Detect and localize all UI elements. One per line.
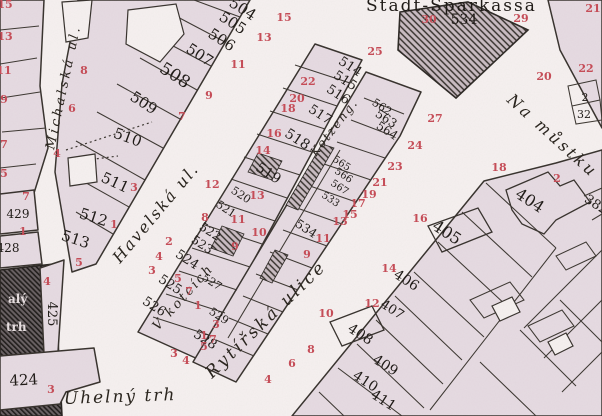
house-number-label: 7 [209, 333, 217, 346]
plot-number-label: 425 [44, 302, 59, 327]
house-number-label: 14 [381, 262, 397, 275]
house-number-label: 20 [536, 70, 552, 83]
house-number-label: 11 [230, 213, 245, 226]
house-number-label: 8 [80, 64, 88, 77]
house-number-label: 14 [255, 144, 271, 157]
house-number-label: 9 [0, 93, 8, 106]
house-number-label: 15 [276, 11, 291, 24]
house-number-label: 5 [174, 272, 182, 285]
house-number-label: 1 [19, 225, 27, 238]
house-number-label: 30 [421, 13, 437, 26]
house-number-label: 12 [204, 178, 219, 191]
house-number-label: 18 [280, 102, 296, 115]
house-number-label: 11 [230, 58, 245, 71]
plot-number-label: 428 [0, 241, 19, 255]
house-number-label: 6 [68, 102, 76, 115]
house-number-label: 7 [0, 138, 8, 151]
house-number-label: 13 [256, 31, 271, 44]
house-number-label: 22 [300, 75, 315, 88]
house-number-label: 9 [303, 248, 311, 261]
plot-number-label: 2 [582, 91, 589, 104]
house-number-label: 9 [205, 89, 213, 102]
house-number-label: 3 [130, 181, 138, 194]
house-number-label: 3 [47, 383, 55, 396]
house-number-label: 9 [231, 240, 239, 253]
house-number-label: 22 [578, 62, 593, 75]
courtyard-square-511 [68, 154, 97, 186]
house-number-label: 11 [0, 64, 12, 77]
house-number-label: 7 [22, 190, 30, 203]
plot-number-label: 429 [7, 207, 30, 221]
map-page: Michalská ul.Havelská ul.Kotzeng.V kotcí… [0, 0, 602, 416]
house-number-label: 6 [288, 357, 296, 370]
house-number-label: 13 [0, 30, 13, 43]
house-number-label: 16 [266, 127, 282, 140]
house-number-label: 13 [249, 189, 264, 202]
house-number-label: 11 [315, 232, 330, 245]
house-number-label: 5 [0, 167, 8, 180]
house-number-label: 8 [201, 211, 209, 224]
house-number-label: 18 [491, 161, 507, 174]
house-number-label: 24 [407, 139, 423, 152]
house-number-label: 7 [178, 110, 186, 123]
house-number-label: 4 [264, 373, 272, 386]
label-fragment: trh [6, 320, 27, 334]
house-number-label: 15 [0, 0, 13, 11]
house-number-label: 3 [170, 347, 178, 360]
house-number-label: 5 [75, 256, 83, 269]
house-number-label: 1 [110, 218, 118, 231]
house-number-label: 10 [318, 307, 334, 320]
house-number-label: 1 [194, 299, 202, 312]
house-number-label: 7 [185, 285, 193, 298]
house-number-label: 4 [182, 354, 190, 367]
house-number-label: 23 [387, 160, 402, 173]
house-number-label: 1 [200, 329, 208, 342]
house-number-label: 4 [53, 147, 61, 160]
house-number-label: 8 [307, 343, 315, 356]
house-number-label: 25 [367, 45, 382, 58]
street-name-label: Uhelný trh [63, 385, 176, 409]
house-number-label: 3 [148, 264, 156, 277]
plot-number-label: 424 [9, 370, 39, 389]
historical-city-map: Michalská ul.Havelská ul.Kotzeng.V kotcí… [0, 0, 602, 416]
label-fragment: alý [8, 292, 28, 306]
house-number-label: 27 [427, 112, 442, 125]
house-number-label: 4 [155, 250, 163, 263]
plot-number-label: 534 [451, 12, 478, 28]
house-number-label: 3 [212, 318, 220, 331]
house-number-label: 2 [165, 235, 173, 248]
house-number-label: 2 [553, 172, 561, 185]
plot-number-label: 32 [577, 108, 591, 121]
house-number-label: 4 [43, 275, 51, 288]
house-number-label: 10 [251, 226, 267, 239]
house-number-label: 29 [513, 12, 528, 25]
house-number-label: 12 [364, 297, 379, 310]
house-number-label: 21 [585, 2, 600, 15]
house-number-label: 16 [412, 212, 428, 225]
house-number-label: 13 [332, 215, 347, 228]
